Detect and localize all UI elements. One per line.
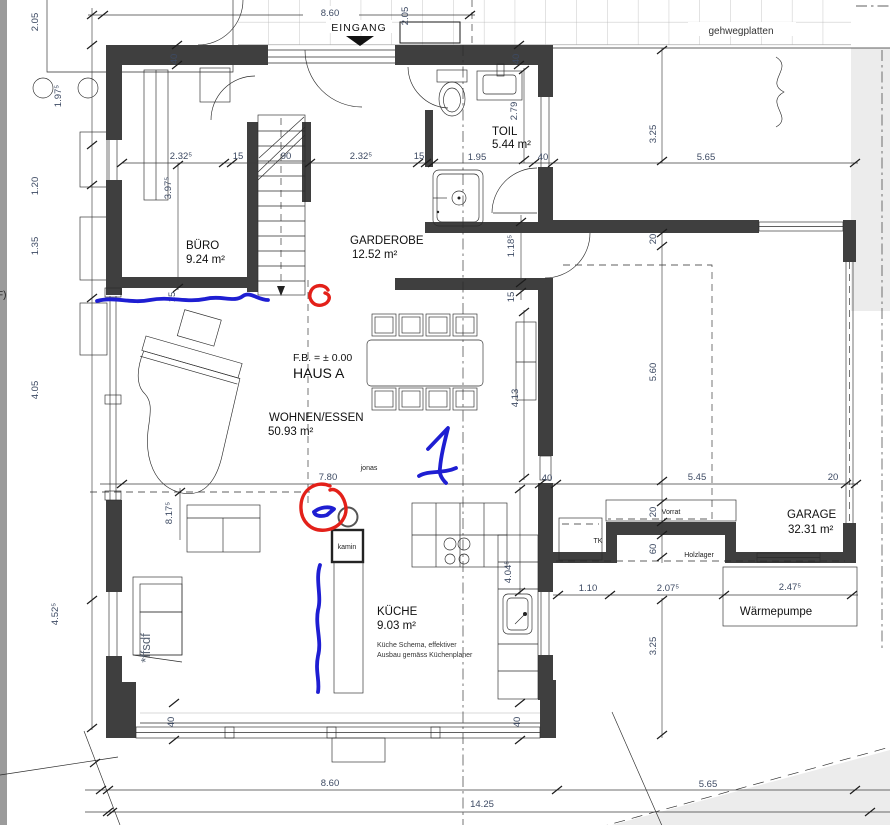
dim-325-top: 3.25 — [648, 125, 659, 144]
dim-l-405: 4.05 — [30, 381, 41, 400]
tk-label: TK — [594, 538, 603, 545]
grand-piano — [107, 301, 258, 501]
toil-door-arc — [408, 67, 448, 108]
dim-15-b: 15 — [414, 151, 425, 162]
floor-level-label: F.B. = ± 0.00 — [293, 352, 352, 364]
ffsdf-note: *ffsdf — [138, 633, 153, 663]
kitchen-counter-top — [412, 503, 507, 567]
blue-mark-kamin — [314, 507, 334, 516]
window-left-lower — [109, 592, 117, 656]
room-garderobe-area: 12.52 m² — [352, 249, 398, 261]
window-buero-left — [109, 140, 117, 180]
room-wohnen-name: WOHNEN/ESSEN — [269, 412, 364, 424]
entry-door-arc — [305, 50, 362, 107]
dim-2475: 2.47⁵ — [779, 582, 801, 593]
dim-2075: 2.07⁵ — [657, 583, 679, 594]
window-kitchen-right — [541, 592, 549, 655]
room-buero-area: 9.24 m² — [186, 254, 225, 266]
floorplan-drawing: 8.60 EINGANG gehwegplatten 2.05 2.05 1.9… — [0, 0, 890, 825]
room-kueche-name: KÜCHE — [377, 606, 418, 618]
gate-arc — [198, 0, 243, 45]
stair-direction-arrow — [277, 286, 285, 296]
kamin-label: kamin — [338, 544, 357, 551]
room-toil-area: 5.44 m² — [492, 139, 531, 151]
room-garage-name: GARAGE — [787, 509, 837, 521]
dim-860-bottom: 8.60 — [321, 778, 340, 789]
chair — [426, 388, 450, 410]
wall-cabinet — [516, 322, 536, 400]
dim-8175: 8.17⁵ — [164, 502, 175, 524]
right-margin-band — [851, 48, 890, 311]
chair — [372, 388, 396, 410]
dim-4045: 4.04⁵ — [503, 561, 514, 583]
dim-413: 4.13 — [510, 389, 521, 408]
site-circle — [78, 78, 98, 98]
dim-2325-a: 2.32⁵ — [170, 151, 192, 162]
chair — [453, 388, 477, 410]
brace-squiggle — [776, 57, 784, 127]
dim-l-205: 2.05 — [30, 13, 41, 32]
dim-l-120: 1.20 — [30, 177, 41, 196]
stairs — [258, 115, 305, 296]
walls — [105, 45, 856, 738]
dim-l-4525: 4.52⁵ — [50, 603, 61, 625]
vorrat-label: Vorrat — [662, 509, 681, 516]
toil-sink — [477, 64, 522, 100]
dim-560: 5.60 — [648, 363, 659, 382]
dim-40-toil: 40 — [538, 152, 549, 163]
dining-set — [367, 314, 483, 410]
window-garage-top — [759, 222, 843, 231]
dim-195: 1.95 — [468, 152, 487, 163]
window-band-left — [110, 296, 116, 500]
haus-a-label: HAUS A — [293, 365, 345, 381]
garage-access-door-arc — [545, 233, 590, 278]
dim-top-860: 8.60 — [321, 8, 340, 19]
exterior-box — [80, 217, 107, 280]
blue-mark-center — [419, 428, 456, 483]
dim-40-mid: 40 — [542, 473, 553, 484]
left-page-edge — [0, 0, 7, 825]
dimensions — [85, 8, 890, 816]
kitchen-note-2: Ausbau gemäss Küchenplaner — [377, 652, 473, 659]
blue-squiggle-kitchen — [317, 565, 320, 692]
dim-279: 2.79 — [509, 102, 520, 121]
buero-furniture — [144, 68, 230, 200]
gehwegplatten-label: gehwegplatten — [708, 26, 773, 37]
room-toil-name: TOIL — [492, 126, 518, 138]
dim-40-tr: 40 — [511, 54, 522, 65]
dim-545: 5.45 — [688, 472, 707, 483]
room-garage-area: 32.31 m² — [788, 524, 834, 536]
diagonal-line — [612, 712, 663, 825]
eingang-label: EINGANG — [331, 22, 386, 34]
chair — [426, 314, 450, 336]
window-band-bottom — [136, 723, 540, 738]
dim-325-bottom: 3.25 — [648, 637, 659, 656]
chair — [453, 314, 477, 336]
left-edge-text: F) — [0, 290, 6, 301]
dim-110: 1.10 — [579, 583, 598, 594]
dim-565-bottom: 5.65 — [699, 779, 718, 790]
blue-squiggle-horizontal — [97, 294, 268, 301]
dim-780: 7.80 — [319, 472, 338, 483]
kitchen-counter-right — [498, 535, 538, 699]
chair — [399, 388, 423, 410]
waermepumpe-label: Wärmepumpe — [740, 606, 812, 618]
dim-20-h: 20 — [828, 472, 839, 483]
exterior-box — [80, 132, 107, 187]
site-circle — [33, 78, 53, 98]
dim-1425: 14.25 — [470, 799, 494, 810]
chair — [372, 314, 396, 336]
dim-l-1975: 1.97⁵ — [53, 85, 64, 107]
dim-20-top: 20 — [648, 234, 659, 245]
dim-2325-b: 2.32⁵ — [350, 151, 372, 162]
dim-20-v: 20 — [648, 507, 659, 518]
room-kueche-area: 9.03 m² — [377, 620, 416, 632]
kitchen-note-1: Küche Schema, effektiver — [377, 642, 457, 649]
room-wohnen-area: 50.93 m² — [268, 426, 314, 438]
dim-15-r: 15 — [506, 292, 517, 303]
dim-90: 90 — [281, 151, 292, 162]
sofa-top — [187, 505, 260, 552]
chair — [399, 314, 423, 336]
dim-l-135: 1.35 — [30, 237, 41, 256]
dim-1185: 1.18⁵ — [506, 235, 517, 257]
floorplan-page: 8.60 EINGANG gehwegplatten 2.05 2.05 1.9… — [0, 0, 890, 825]
dim-40-bl: 40 — [166, 717, 177, 728]
dim-40-br: 40 — [512, 717, 523, 728]
exterior-step — [332, 738, 385, 762]
jonas-note: jonas — [360, 465, 378, 472]
holzlager-label: Holzlager — [684, 552, 714, 559]
red-loop-stairs — [310, 286, 329, 306]
buero-door-arc — [211, 76, 255, 120]
shower-tray — [433, 170, 483, 226]
dim-565-top: 5.65 — [697, 152, 716, 163]
dim-3975: 3.97⁵ — [163, 177, 174, 199]
room-garderobe-name: GARDEROBE — [350, 235, 424, 247]
toilet-fixture — [437, 70, 467, 116]
dim-entry-205: 2.05 — [400, 7, 411, 26]
dim-15-a: 15 — [233, 151, 244, 162]
kitchen-island — [334, 562, 363, 693]
room-buero-name: BÜRO — [186, 240, 219, 252]
shower-door-arc — [492, 168, 537, 213]
dim-40-tl: 40 — [169, 54, 180, 65]
bottom-right-area — [612, 750, 890, 825]
dim-60-v: 60 — [648, 544, 659, 555]
exterior-box — [80, 303, 107, 355]
